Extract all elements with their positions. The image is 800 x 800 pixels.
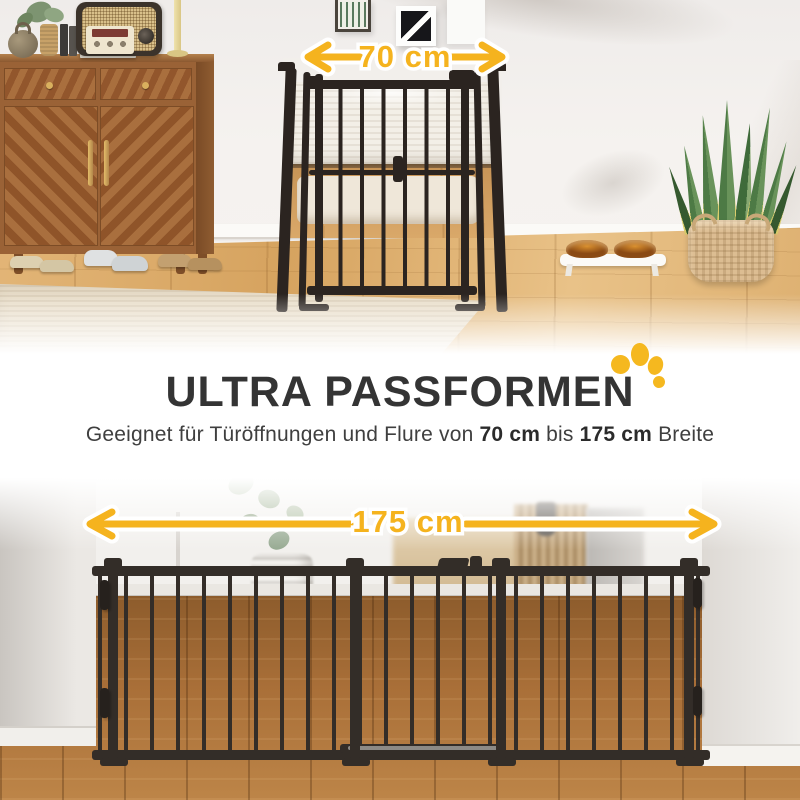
arrow-right-icon [466,512,714,536]
dog-bowl [566,240,608,258]
safety-gate-wide [92,558,710,770]
photo-fade [0,294,800,362]
subtitle-part: Geeignet für Türöffnungen und Flure von [86,423,480,446]
slipper [188,258,222,270]
baseboard [0,726,96,746]
door-handle [88,140,93,186]
post-cap [492,558,510,567]
gate-latch-post [496,560,506,760]
cabinet-side [196,62,214,254]
radio-dial [138,28,154,44]
drawer-knob [142,82,149,89]
gate-hinge-post [315,74,323,302]
subtitle-part: bis [540,423,580,446]
radio-knobs [92,41,128,48]
gate-latch-handle [436,558,469,571]
gate-foot [676,758,704,766]
dimension-text: 70 cm [359,39,452,74]
radio-label [92,29,128,37]
slipper [10,256,44,268]
gate-bracket [463,76,477,84]
radio-front-panel [86,26,134,54]
slipper [158,254,192,267]
gate-mid-rail [309,170,475,175]
wooden-sideboard [0,54,214,274]
subtitle-bold-70cm: 70 cm [480,423,541,446]
gate-bars [98,570,704,756]
subtitle-part: Breite [652,423,714,446]
safety-gate-small [281,60,503,312]
gate-bracket [307,76,321,84]
arrow-left-icon [308,45,360,69]
woven-vase [40,24,58,56]
headline-title: ULTRA PASSFORMEN [0,368,800,417]
wall-mount-bracket [100,688,109,718]
gate-foot [100,758,128,766]
arrow-left-icon [90,512,350,536]
book [60,24,68,56]
gate-top-rail [92,566,710,576]
arrow-right-icon [450,45,502,69]
floor-lamp [174,0,181,56]
wall-mount-bracket [100,580,109,610]
subtitle-bold-175cm: 175 cm [580,423,652,446]
door-handle [104,140,109,186]
post-cap [104,558,122,567]
platform-leg [565,264,573,276]
post-cap [346,558,364,567]
gate-post [108,560,118,760]
gate-foot [488,758,516,766]
vintage-radio [76,2,162,56]
subtitle-text: Geeignet für Türöffnungen und Flure von … [0,423,800,447]
gate-post [299,72,311,308]
dimension-text: 175 cm [352,504,463,539]
cabinet-door [4,106,98,246]
kettle-handle [15,22,31,34]
dog-bowl-stand [560,240,666,278]
drawer-knob [46,82,53,89]
dog-bowl [614,240,656,258]
width-dimension-175cm: 175 cm [78,488,726,542]
gate-hinge-post [350,560,360,760]
plant-sprig [43,6,66,25]
top-photo-scene: 70 cm [0,0,800,362]
wall-mount-bracket [693,686,702,716]
gate-latch [470,556,482,576]
plant-leaf [716,100,738,235]
gate-post [276,68,296,312]
bottom-photo-scene: 175 cm [0,462,800,800]
slipper [40,260,74,272]
pressure-mount-cap [278,62,295,71]
decor-kettle [8,30,38,58]
gate-bars [317,82,467,294]
width-dimension-70cm: 70 cm [298,24,512,76]
product-marketing-image: 70 cm ULTRA PASSFORMEN Geeignet für Türö… [0,0,800,800]
cabinet-door [100,106,194,246]
gate-threshold [348,746,498,750]
wall-mount-bracket [693,578,702,608]
slipper [112,256,148,271]
gate-latch-post [461,74,469,302]
gate-post [487,68,507,312]
woven-plant-basket [688,220,774,282]
gate-post [474,72,486,308]
lamp-base [167,50,188,57]
gate-hinge [393,156,403,182]
post-cap [680,558,698,567]
baseboard [702,744,800,766]
gate-foot [342,758,370,766]
